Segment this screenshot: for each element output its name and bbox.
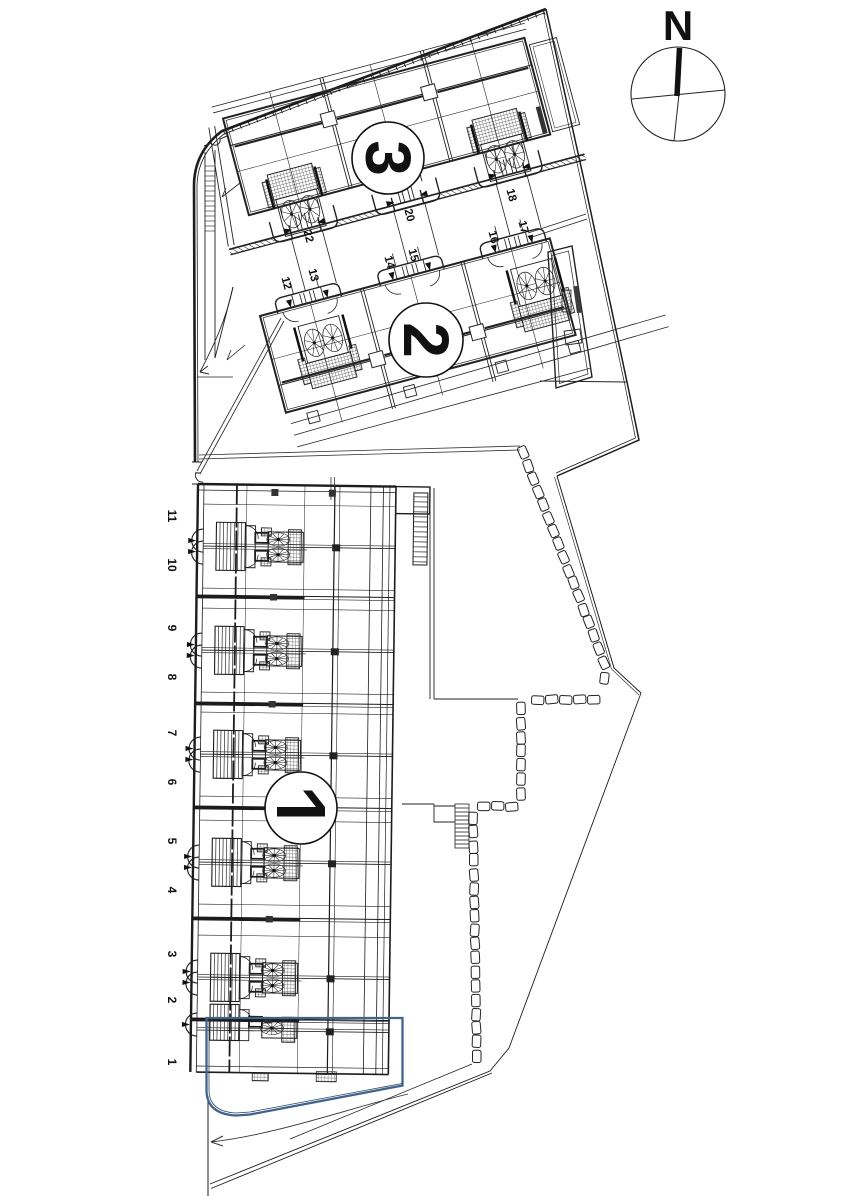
- svg-text:1: 1: [165, 1059, 179, 1066]
- svg-text:4: 4: [165, 887, 179, 894]
- svg-text:2: 2: [390, 322, 462, 358]
- svg-text:2: 2: [165, 997, 179, 1004]
- svg-text:N: N: [663, 2, 693, 49]
- svg-text:3: 3: [352, 140, 424, 176]
- svg-text:9: 9: [165, 625, 179, 632]
- svg-text:3: 3: [165, 951, 179, 958]
- svg-text:10: 10: [165, 558, 179, 572]
- svg-text:5: 5: [165, 838, 179, 845]
- svg-text:11: 11: [165, 510, 179, 523]
- svg-text:7: 7: [165, 730, 179, 737]
- svg-text:8: 8: [165, 674, 179, 681]
- svg-text:6: 6: [165, 779, 179, 786]
